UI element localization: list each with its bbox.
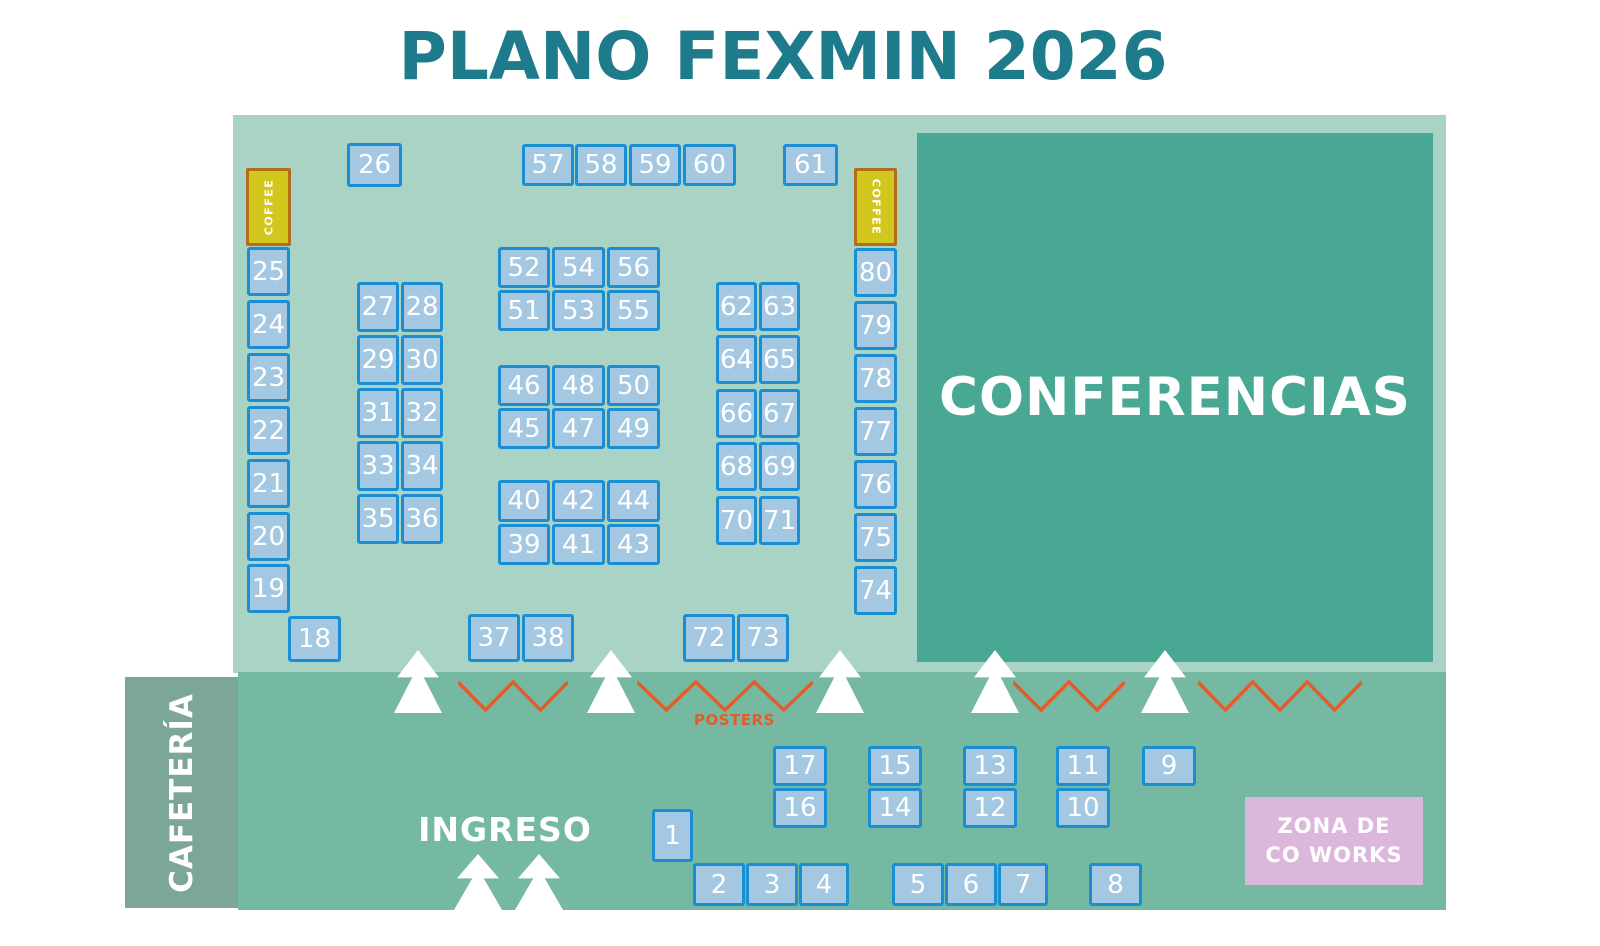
entrance-label: INGRESO: [412, 810, 598, 849]
booth-20: 20: [247, 512, 290, 561]
booth-35: 35: [357, 494, 399, 544]
booth-21: 21: [247, 459, 290, 508]
booth-9: 9: [1142, 746, 1196, 786]
booth-58: 58: [575, 144, 627, 186]
up-arrow-icon: [1141, 650, 1189, 713]
booth-53: 53: [552, 290, 605, 331]
booth-55: 55: [607, 290, 660, 331]
posters-zigzag-icon: [1198, 676, 1362, 720]
entrance-up-arrow-icon: [454, 854, 502, 910]
booth-15: 15: [868, 746, 922, 786]
booth-67: 67: [759, 389, 800, 438]
booth-34: 34: [401, 441, 443, 491]
booth-54: 54: [552, 247, 605, 288]
booth-14: 14: [868, 788, 922, 828]
booth-39: 39: [498, 524, 550, 565]
booth-28: 28: [401, 282, 443, 332]
booth-66: 66: [716, 389, 757, 438]
posters-zigzag-icon: [1013, 676, 1125, 720]
booth-24: 24: [247, 300, 290, 349]
booth-23: 23: [247, 353, 290, 402]
booth-11: 11: [1056, 746, 1110, 786]
booth-4: 4: [799, 863, 849, 906]
booth-32: 32: [401, 388, 443, 438]
booth-60: 60: [683, 144, 736, 186]
booth-38: 38: [522, 614, 574, 662]
booth-42: 42: [552, 480, 605, 522]
booth-2: 2: [693, 863, 745, 906]
booth-29: 29: [357, 335, 399, 385]
booth-41: 41: [552, 524, 605, 565]
coffee-station: COFFEE: [854, 168, 897, 246]
cafeteria-area: CAFETERÍA: [125, 677, 238, 908]
booth-12: 12: [963, 788, 1017, 828]
booth-62: 62: [716, 282, 757, 331]
booth-17: 17: [773, 746, 827, 786]
booth-33: 33: [357, 441, 399, 491]
booth-65: 65: [759, 335, 800, 384]
booth-10: 10: [1056, 788, 1110, 828]
up-arrow-icon: [971, 650, 1019, 713]
booth-51: 51: [498, 290, 550, 331]
coffee-label: COFFEE: [869, 179, 882, 235]
booth-40: 40: [498, 480, 550, 522]
up-arrow-icon: [816, 650, 864, 713]
booth-30: 30: [401, 335, 443, 385]
booth-13: 13: [963, 746, 1017, 786]
booth-59: 59: [629, 144, 681, 186]
up-arrow-icon: [587, 650, 635, 713]
booth-6: 6: [945, 863, 997, 906]
booth-75: 75: [854, 513, 897, 562]
booth-44: 44: [607, 480, 660, 522]
booth-61: 61: [783, 144, 838, 186]
booth-45: 45: [498, 408, 550, 449]
booth-25: 25: [247, 247, 290, 296]
booth-50: 50: [607, 365, 660, 406]
booth-76: 76: [854, 460, 897, 509]
booth-7: 7: [998, 863, 1048, 906]
booth-26: 26: [347, 143, 402, 187]
booth-68: 68: [716, 442, 757, 491]
up-arrow-icon: [394, 650, 442, 713]
booth-57: 57: [522, 144, 574, 186]
booth-69: 69: [759, 442, 800, 491]
booth-47: 47: [552, 408, 605, 449]
booth-16: 16: [773, 788, 827, 828]
booth-73: 73: [737, 614, 789, 662]
booth-74: 74: [854, 566, 897, 615]
booth-78: 78: [854, 354, 897, 403]
conferences-label: CONFERENCIAS: [939, 367, 1411, 428]
booth-71: 71: [759, 496, 800, 545]
booth-77: 77: [854, 407, 897, 456]
booth-27: 27: [357, 282, 399, 332]
posters-zigzag-icon: [637, 676, 813, 720]
booth-37: 37: [468, 614, 520, 662]
booth-36: 36: [401, 494, 443, 544]
booth-52: 52: [498, 247, 550, 288]
floor-plan: PLANO FEXMIN 2026 CAFETERÍA CONFERENCIAS…: [0, 0, 1600, 946]
booth-31: 31: [357, 388, 399, 438]
posters-zigzag-icon: [458, 676, 568, 720]
booth-56: 56: [607, 247, 660, 288]
booth-5: 5: [892, 863, 944, 906]
booth-46: 46: [498, 365, 550, 406]
booth-70: 70: [716, 496, 757, 545]
booth-18: 18: [288, 616, 341, 662]
conferences-area: CONFERENCIAS: [917, 133, 1433, 662]
booth-63: 63: [759, 282, 800, 331]
booth-72: 72: [683, 614, 735, 662]
booth-19: 19: [247, 564, 290, 613]
booth-3: 3: [746, 863, 798, 906]
booth-8: 8: [1089, 863, 1142, 906]
booth-1: 1: [652, 809, 693, 862]
booth-48: 48: [552, 365, 605, 406]
booth-64: 64: [716, 335, 757, 384]
booth-49: 49: [607, 408, 660, 449]
page-title: PLANO FEXMIN 2026: [0, 18, 1566, 95]
cafeteria-label: CAFETERÍA: [164, 693, 200, 893]
cowork-label-line1: ZONA DE: [1278, 812, 1391, 841]
booth-79: 79: [854, 301, 897, 350]
booth-80: 80: [854, 248, 897, 297]
coffee-station: COFFEE: [246, 168, 291, 246]
entrance-up-arrow-icon: [515, 854, 563, 910]
coffee-label: COFFEE: [262, 179, 275, 235]
booth-22: 22: [247, 406, 290, 455]
cowork-label-line2: CO WORKS: [1265, 841, 1402, 870]
booth-43: 43: [607, 524, 660, 565]
cowork-zone: ZONA DE CO WORKS: [1245, 797, 1423, 885]
